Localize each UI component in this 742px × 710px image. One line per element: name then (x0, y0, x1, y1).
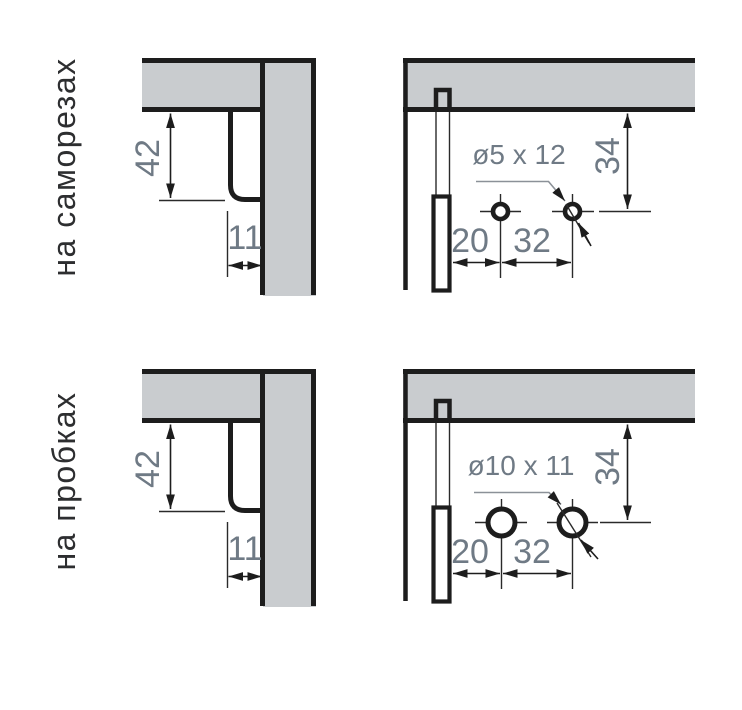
bracket-edge (434, 197, 450, 291)
leader-line (476, 182, 565, 202)
dim-text-42: 42 (129, 450, 167, 488)
diagram-canvas: на саморезах 42 11 (0, 0, 742, 710)
hole-pointer-arrow (581, 540, 598, 559)
dim-text-32: 32 (513, 533, 551, 571)
leader-line (474, 493, 561, 505)
front-view-screws: ø5 x 12 34 20 32 (403, 58, 695, 291)
side-view-screws: 42 11 (129, 58, 316, 296)
hole-size-label: ø10 x 11 (468, 450, 575, 481)
dim-text-34: 34 (589, 448, 627, 486)
section-plugs: на пробках 42 11 (46, 369, 695, 607)
dim-text-11: 11 (227, 219, 262, 257)
hole-size-label: ø5 x 12 (472, 139, 565, 170)
dim-text-32: 32 (513, 222, 551, 260)
drill-hole-left (488, 509, 515, 536)
side-panel (263, 369, 316, 607)
bracket-profile (231, 110, 263, 200)
hole-pointer-arrow (579, 223, 592, 246)
dim-text-34: 34 (589, 137, 627, 175)
row-label-plugs: на пробках (46, 391, 82, 570)
dim-text-11: 11 (227, 530, 262, 568)
section-screws: на саморезах 42 11 (46, 57, 695, 296)
top-panel (403, 58, 695, 110)
top-panel (142, 58, 268, 110)
drill-hole-left (493, 204, 508, 219)
dim-text-20: 20 (451, 533, 489, 571)
bracket-profile (231, 421, 263, 511)
dim-text-42: 42 (129, 139, 167, 177)
front-view-plugs: ø10 x 11 34 20 32 (403, 369, 695, 602)
dim-text-20: 20 (451, 222, 489, 260)
top-panel (403, 369, 695, 421)
bracket-edge (434, 508, 450, 602)
mounting-diagram: на саморезах 42 11 (0, 0, 742, 710)
row-label-screws: на саморезах (46, 57, 82, 276)
top-panel (142, 369, 268, 421)
side-view-plugs: 42 11 (129, 369, 316, 607)
side-panel (263, 58, 316, 296)
